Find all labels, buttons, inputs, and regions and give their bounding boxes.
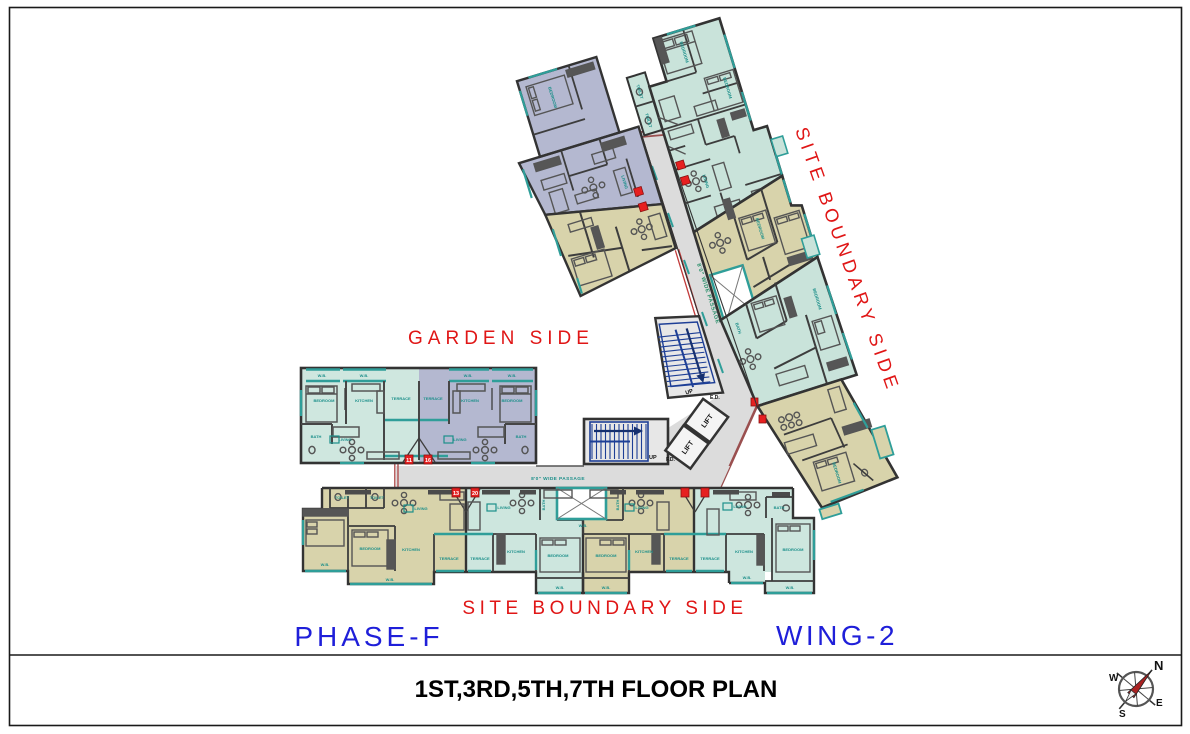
svg-text:SITE BOUNDARY SIDE: SITE BOUNDARY SIDE [462,598,747,619]
svg-text:1ST,3RD,5TH,7TH FLOOR PLAN: 1ST,3RD,5TH,7TH FLOOR PLAN [415,676,778,703]
svg-text:TERRACE: TERRACE [423,396,443,401]
svg-text:LIVING: LIVING [733,504,746,509]
svg-text:WING-2: WING-2 [776,620,898,651]
svg-text:W.B.: W.B. [556,585,565,590]
svg-text:E.D.: E.D. [710,395,720,401]
svg-text:KITCHEN: KITCHEN [355,398,373,403]
svg-text:LIVING: LIVING [635,505,648,510]
svg-text:TERRACE: TERRACE [391,396,411,401]
svg-text:N: N [1154,658,1163,673]
svg-text:W.B.: W.B. [386,577,395,582]
svg-text:LIVING: LIVING [453,437,466,442]
svg-text:W.B.: W.B. [602,585,611,590]
svg-text:W.B.: W.B. [786,585,795,590]
svg-text:KITCHEN: KITCHEN [461,398,479,403]
svg-text:KITCHEN: KITCHEN [635,549,653,554]
svg-text:W: W [1109,673,1119,684]
svg-text:PHASE-F: PHASE-F [294,621,443,652]
svg-text:TERRACE: TERRACE [669,556,689,561]
svg-text:BEDROOM: BEDROOM [596,553,618,558]
svg-text:LIVING: LIVING [497,505,510,510]
svg-text:W.B.: W.B. [579,523,588,528]
svg-text:LIVING: LIVING [414,506,427,511]
svg-text:W.B.: W.B. [321,562,330,567]
svg-text:BATH: BATH [541,499,546,510]
svg-text:11: 11 [406,458,412,464]
svg-text:BATH: BATH [615,499,620,510]
svg-text:BEDROOM: BEDROOM [314,398,336,403]
svg-text:GARDEN SIDE: GARDEN SIDE [408,328,594,349]
svg-text:TOILET: TOILET [370,495,385,500]
svg-text:KITCHEN: KITCHEN [402,547,420,552]
svg-text:13: 13 [453,491,459,497]
svg-text:E: E [1156,698,1163,709]
svg-text:KITCHEN: KITCHEN [735,549,753,554]
svg-text:BEDROOM: BEDROOM [548,553,570,558]
svg-text:BATH: BATH [516,434,527,439]
svg-text:TERRACE: TERRACE [439,556,459,561]
svg-text:BEDROOM: BEDROOM [783,547,805,552]
svg-text:KITCHEN: KITCHEN [507,549,525,554]
svg-text:W.B.: W.B. [360,373,369,378]
svg-text:20: 20 [472,491,478,497]
svg-text:BATH: BATH [311,434,322,439]
svg-text:BEDROOM: BEDROOM [360,546,382,551]
svg-text:TOILET: TOILET [335,495,350,500]
svg-text:S: S [1119,709,1126,720]
svg-text:8'0" WIDE PASSAGE: 8'0" WIDE PASSAGE [531,476,585,482]
svg-text:TERRACE: TERRACE [700,556,720,561]
svg-text:W.B.: W.B. [318,373,327,378]
svg-text:UP: UP [649,455,657,461]
svg-text:W.B.: W.B. [508,373,517,378]
svg-text:16: 16 [425,458,431,464]
svg-text:W.B.: W.B. [464,373,473,378]
svg-text:BEDROOM: BEDROOM [502,398,524,403]
svg-text:LIVING: LIVING [338,437,351,442]
svg-text:BATH: BATH [774,505,785,510]
svg-text:TERRACE: TERRACE [470,556,490,561]
svg-text:W.B.: W.B. [743,575,752,580]
